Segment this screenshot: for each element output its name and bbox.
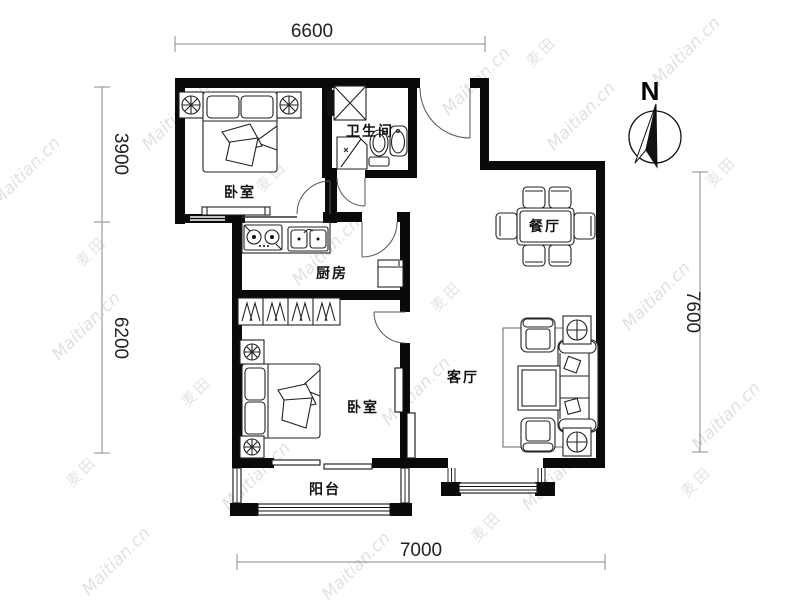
watermark-site: Maitian.cn bbox=[78, 523, 154, 599]
dining-chair bbox=[496, 213, 517, 239]
pillow bbox=[245, 368, 265, 400]
dining-chair bbox=[549, 187, 571, 208]
dining-chair bbox=[574, 213, 595, 239]
label-kitchen: 厨房 bbox=[316, 265, 348, 281]
watermark-brand: 麦田 bbox=[467, 507, 505, 545]
wall-dining-top bbox=[480, 161, 605, 170]
dim-left-lower-value: 6200 bbox=[110, 317, 131, 359]
watermark-site: Maitian.cn bbox=[648, 13, 724, 89]
dining-chair bbox=[523, 187, 545, 208]
pillow bbox=[241, 96, 273, 118]
watermark-brand: 麦田 bbox=[177, 372, 215, 410]
nightstand-lamp bbox=[240, 436, 264, 458]
nightstand-lamp bbox=[240, 340, 264, 364]
floorplan-page: Maitian.cn Maitian.cn Maitian.cn Maitian… bbox=[0, 0, 800, 600]
wall-entry-step bbox=[480, 78, 489, 170]
throw-pillow bbox=[565, 398, 581, 414]
nightstand-lamp bbox=[179, 92, 203, 118]
label-bedroom-top: 卧室 bbox=[224, 184, 256, 200]
wall-bedroom2-bottom-right bbox=[372, 458, 410, 468]
dim-left-upper-value: 3900 bbox=[110, 133, 131, 175]
bay-window-sides bbox=[448, 468, 545, 483]
watermark-brand: 麦田 bbox=[677, 462, 715, 500]
armchair bbox=[521, 318, 555, 352]
watermark-site: Maitian.cn bbox=[318, 528, 394, 600]
living-furniture bbox=[503, 316, 598, 456]
watermark-site: Maitian.cn bbox=[543, 78, 619, 154]
coffee-table bbox=[518, 366, 560, 410]
wall-baywindow-post-right bbox=[535, 482, 555, 496]
bedroom2-door bbox=[374, 312, 405, 343]
watermark-brand: 麦田 bbox=[427, 277, 465, 315]
closet bbox=[238, 298, 340, 325]
wall-bathroom-right bbox=[408, 78, 417, 170]
corner-shower bbox=[337, 137, 367, 169]
wall-kitchen-top-left bbox=[325, 212, 362, 222]
label-bathroom: 卫生间 bbox=[346, 123, 394, 139]
watermark-brand: 麦田 bbox=[702, 152, 740, 190]
sofa bbox=[558, 340, 598, 432]
dim-top-value: 6600 bbox=[291, 21, 333, 42]
bathroom-door bbox=[337, 178, 365, 206]
fridge bbox=[378, 260, 403, 287]
pillow bbox=[245, 402, 265, 434]
wall-balcony-corner-right bbox=[390, 503, 412, 516]
armchair bbox=[521, 418, 555, 452]
kitchen-door bbox=[362, 222, 397, 257]
dim-left: 3900 6200 bbox=[94, 87, 131, 453]
balcony-slider-panel2 bbox=[324, 464, 372, 469]
wall-bathroom-bottom bbox=[365, 170, 417, 178]
compass-north-label: N bbox=[641, 76, 660, 106]
watermark-brand: 麦田 bbox=[72, 232, 110, 270]
balcony-front-window bbox=[258, 504, 390, 515]
wall-living-bottom-right bbox=[543, 458, 605, 468]
dining-chair bbox=[549, 245, 571, 266]
dining-chair bbox=[523, 245, 545, 266]
dim-right: 7600 bbox=[682, 172, 708, 452]
floorplan-svg: Maitian.cn Maitian.cn Maitian.cn Maitian… bbox=[0, 0, 800, 600]
kitchen-sink bbox=[288, 227, 328, 251]
washing-machine bbox=[327, 86, 366, 120]
label-living: 客厅 bbox=[446, 369, 479, 385]
dim-top: 6600 bbox=[175, 21, 485, 52]
label-bedroom-bottom: 卧室 bbox=[347, 399, 379, 415]
wall-hall-chunk bbox=[325, 168, 337, 216]
label-dining: 餐厅 bbox=[528, 218, 561, 234]
nightstand-lamp bbox=[277, 92, 301, 118]
stove bbox=[244, 225, 282, 250]
dim-right-value: 7600 bbox=[682, 291, 703, 333]
compass: N bbox=[629, 76, 681, 167]
wall-top-left bbox=[175, 78, 420, 88]
dim-bottom: 7000 bbox=[237, 540, 605, 570]
dresser bbox=[202, 207, 270, 215]
balcony-slider-panel1 bbox=[272, 460, 320, 465]
bay-window-glass bbox=[459, 483, 537, 493]
watermark-brand: 麦田 bbox=[62, 452, 100, 490]
bedroom2-furniture bbox=[240, 340, 415, 458]
wall-baywindow-post-left bbox=[441, 482, 461, 496]
side-table-plant bbox=[563, 428, 591, 456]
pillow bbox=[207, 96, 239, 118]
label-balcony: 阳台 bbox=[309, 481, 341, 497]
dim-bottom-value: 7000 bbox=[400, 540, 442, 561]
wall-bedroom2-right-upper bbox=[400, 300, 410, 312]
side-table-plant bbox=[563, 316, 591, 344]
watermark-site: Maitian.cn bbox=[378, 353, 454, 429]
wall-balcony-corner-left bbox=[230, 503, 258, 516]
watermark-site: Maitian.cn bbox=[0, 133, 65, 209]
watermark-brand: 麦田 bbox=[522, 32, 560, 70]
